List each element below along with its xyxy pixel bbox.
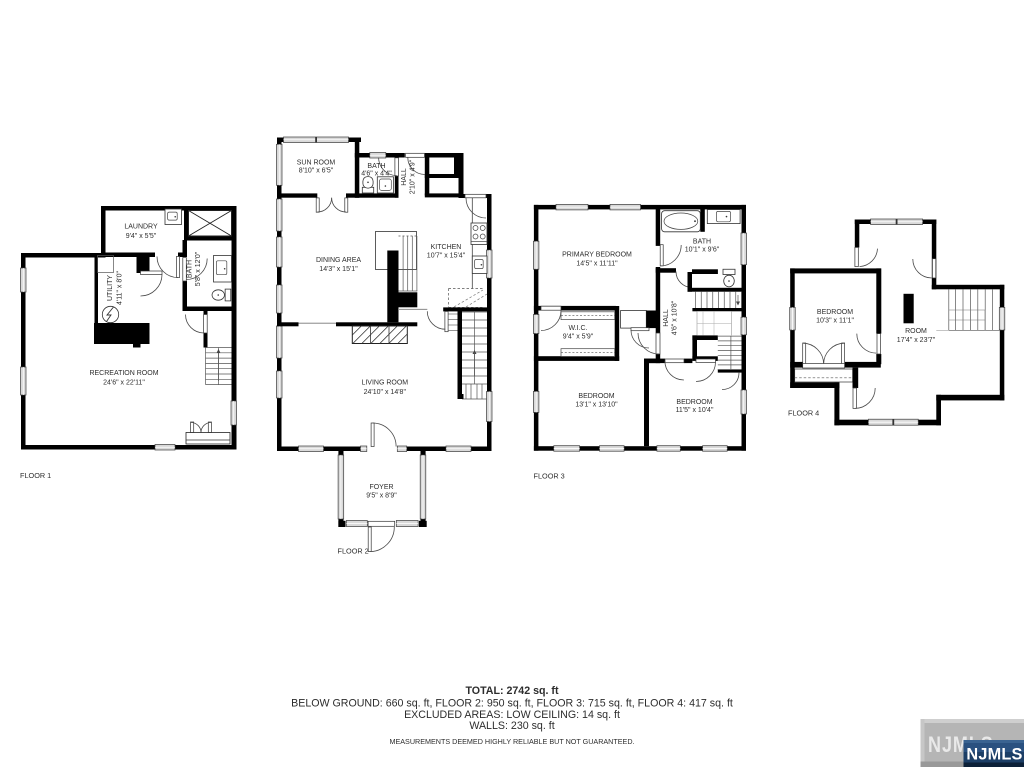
svg-text:5'8" x 12'0": 5'8" x 12'0" (195, 251, 202, 286)
svg-text:FLOOR 3: FLOOR 3 (534, 472, 565, 481)
svg-text:PRIMARY BEDROOM: PRIMARY BEDROOM (562, 252, 632, 259)
svg-text:9'4" x 5'9": 9'4" x 5'9" (563, 334, 594, 341)
svg-text:NJMLS: NJMLS (966, 746, 1022, 764)
svg-text:17'4" x 23'7": 17'4" x 23'7" (897, 337, 936, 344)
svg-text:KITCHEN: KITCHEN (431, 244, 462, 251)
svg-text:4'6" x 10'8": 4'6" x 10'8" (672, 300, 679, 335)
svg-text:UTILITY: UTILITY (107, 275, 114, 301)
svg-text:DINING AREA: DINING AREA (316, 257, 361, 264)
svg-text:10'1" x 9'6": 10'1" x 9'6" (685, 247, 720, 254)
svg-text:BELOW GROUND: 660 sq. ft, FLOO: BELOW GROUND: 660 sq. ft, FLOOR 2: 950 s… (291, 698, 733, 710)
svg-text:RECREATION ROOM: RECREATION ROOM (89, 370, 158, 377)
svg-text:HALL: HALL (401, 168, 408, 186)
svg-text:13'1" x 13'10": 13'1" x 13'10" (575, 402, 618, 409)
svg-text:SUN ROOM: SUN ROOM (297, 159, 336, 166)
svg-text:9'5" x 8'9": 9'5" x 8'9" (366, 493, 397, 500)
svg-text:TOTAL: 2742 sq. ft: TOTAL: 2742 sq. ft (465, 685, 558, 697)
svg-text:24'6" x 22'11": 24'6" x 22'11" (103, 380, 145, 387)
svg-text:10'7" x 15'4": 10'7" x 15'4" (427, 253, 466, 260)
svg-text:11'5" x 10'4": 11'5" x 10'4" (676, 407, 714, 414)
svg-text:ROOM: ROOM (905, 328, 927, 335)
svg-text:14'3" x 15'1": 14'3" x 15'1" (319, 266, 358, 273)
svg-text:LAUNDRY: LAUNDRY (124, 224, 158, 231)
svg-text:BEDROOM: BEDROOM (817, 309, 853, 316)
svg-text:BEDROOM: BEDROOM (676, 399, 712, 406)
svg-text:8'10" x 6'5": 8'10" x 6'5" (299, 168, 334, 175)
svg-text:HALL: HALL (663, 309, 670, 327)
svg-text:9'4" x 5'5": 9'4" x 5'5" (126, 233, 157, 240)
svg-text:BATH: BATH (367, 163, 385, 170)
svg-text:BATH: BATH (187, 260, 194, 278)
svg-text:10'3" x 11'1": 10'3" x 11'1" (816, 318, 854, 325)
svg-text:BATH: BATH (693, 239, 711, 246)
svg-text:2'10" x 4'9": 2'10" x 4'9" (410, 159, 417, 194)
svg-text:BEDROOM: BEDROOM (578, 393, 614, 400)
svg-text:LIVING ROOM: LIVING ROOM (361, 380, 408, 387)
svg-text:FLOOR 2: FLOOR 2 (338, 547, 369, 556)
svg-text:FLOOR 4: FLOOR 4 (788, 409, 819, 418)
svg-text:24'10" x 14'8": 24'10" x 14'8" (364, 389, 407, 396)
svg-text:W.I.C.: W.I.C. (568, 325, 587, 332)
svg-text:4'6" x 4'4": 4'6" x 4'4" (361, 171, 392, 178)
svg-text:4'11" x 8'0": 4'11" x 8'0" (117, 270, 124, 304)
svg-text:FOYER: FOYER (369, 484, 393, 491)
svg-text:MEASUREMENTS DEEMED HIGHLY REL: MEASUREMENTS DEEMED HIGHLY RELIABLE BUT … (389, 737, 634, 746)
svg-text:WALLS: 230 sq. ft: WALLS: 230 sq. ft (469, 720, 554, 732)
svg-text:FLOOR 1: FLOOR 1 (20, 471, 51, 480)
svg-text:14'5" x 11'11": 14'5" x 11'11" (576, 261, 618, 268)
